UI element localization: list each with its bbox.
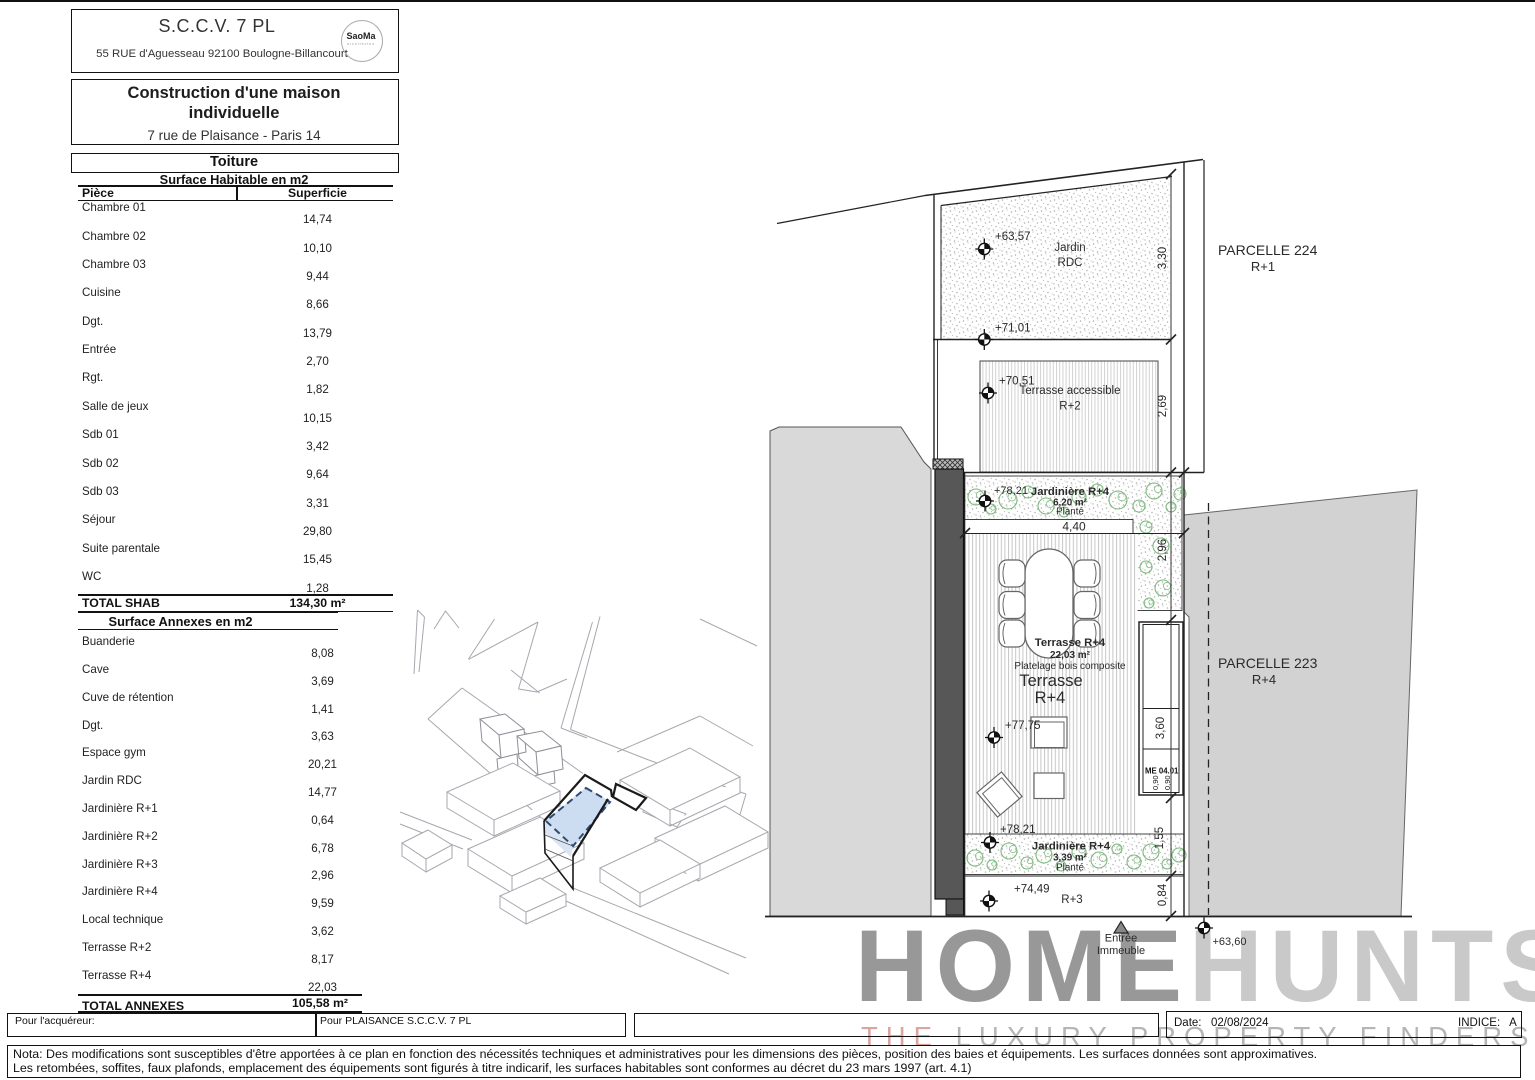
svg-text:2,69: 2,69 [1157,395,1169,417]
svg-text:Jardinière R+4: Jardinière R+4 [1031,486,1110,498]
svg-text:R+4: R+4 [1252,672,1276,687]
svg-text:Terrasse accessible: Terrasse accessible [1020,385,1121,397]
svg-text:PARCELLE 224: PARCELLE 224 [1218,242,1318,258]
svg-text:3,60: 3,60 [1155,717,1167,739]
svg-text:22,03 m²: 22,03 m² [1050,650,1091,661]
svg-text:Platelage bois composite: Platelage bois composite [1014,661,1126,672]
svg-text:Immeuble: Immeuble [1097,945,1145,957]
svg-text:ME 04.01: ME 04.01 [1145,767,1179,776]
svg-text:Terrasse: Terrasse [1019,672,1082,690]
svg-text:R+4: R+4 [1035,689,1066,707]
svg-text:+77,75: +77,75 [1005,720,1041,732]
svg-text:Jardinière R+4: Jardinière R+4 [1032,841,1111,853]
svg-text:+74,49: +74,49 [1014,884,1050,896]
svg-text:Planté: Planté [1056,507,1084,518]
svg-text:RDC: RDC [1058,257,1083,269]
svg-text:PARCELLE 223: PARCELLE 223 [1218,655,1318,671]
svg-text:Entrée: Entrée [1105,933,1137,945]
svg-text:Jardin: Jardin [1054,242,1085,254]
svg-text:Terrasse R+4: Terrasse R+4 [1035,637,1106,649]
svg-text:3,30: 3,30 [1157,247,1169,269]
svg-text:Planté: Planté [1056,863,1084,874]
svg-text:1,55: 1,55 [1154,827,1166,849]
svg-text:+78,21: +78,21 [1000,824,1036,836]
svg-text:+78,21: +78,21 [994,485,1028,497]
svg-text:2,96: 2,96 [1157,539,1169,561]
svg-text:+63,60: +63,60 [1213,936,1247,948]
svg-text:+71,01: +71,01 [995,323,1031,335]
svg-text:+63,57: +63,57 [995,231,1031,243]
svg-text:0,84: 0,84 [1157,883,1169,906]
svg-text:R+3: R+3 [1061,894,1082,906]
svg-text:0,90: 0,90 [1151,775,1160,790]
svg-text:4,40: 4,40 [1062,520,1086,534]
svg-text:R+2: R+2 [1059,401,1080,413]
svg-text:R+1: R+1 [1251,259,1275,274]
